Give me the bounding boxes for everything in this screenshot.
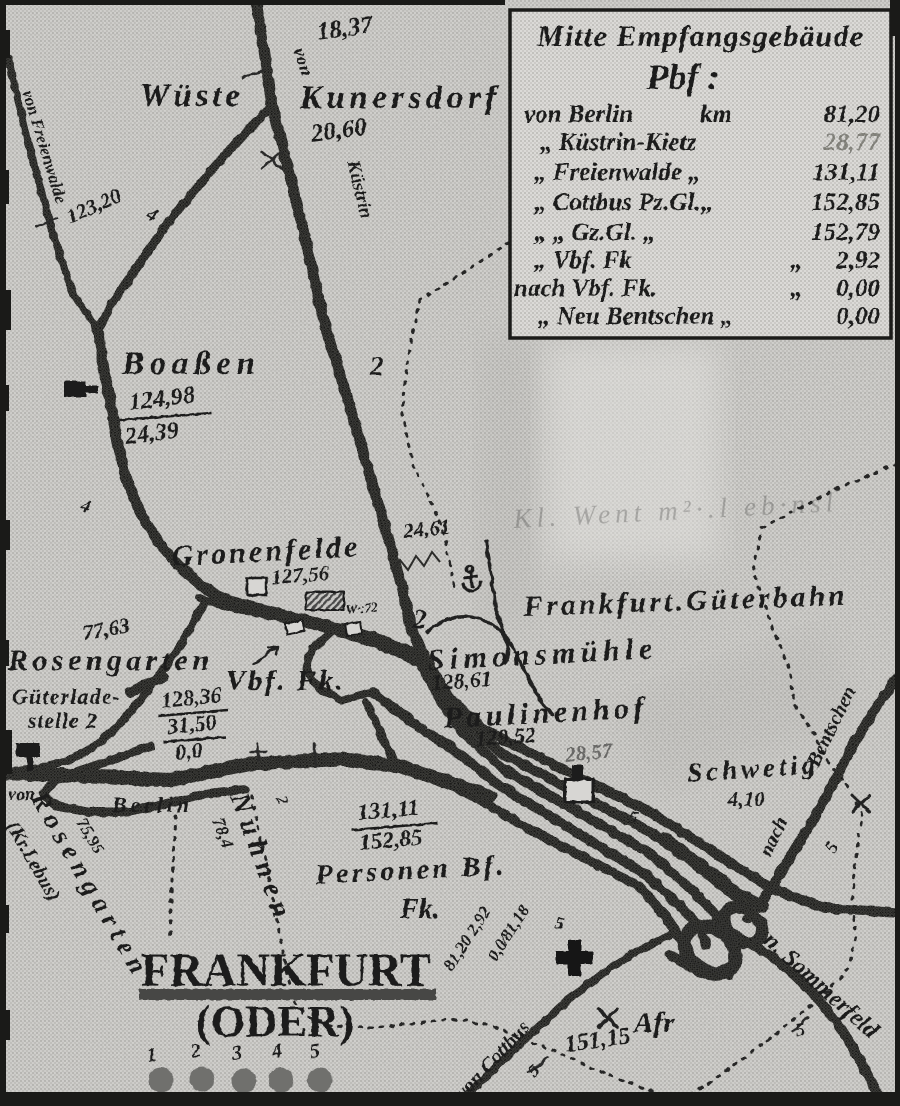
svg-text:0,00: 0,00 xyxy=(836,303,880,330)
svg-text:„ Neu Bentschen „: „ Neu Bentschen „ xyxy=(538,303,733,330)
svg-text:Afr: Afr xyxy=(632,1007,675,1039)
svg-text:2: 2 xyxy=(412,604,427,634)
svg-text:4,10: 4,10 xyxy=(727,787,765,811)
svg-text:„ Cottbus Pz.Gl.„: „ Cottbus Pz.Gl.„ xyxy=(534,189,713,216)
svg-text:31,50: 31,50 xyxy=(165,709,218,739)
svg-text:24,61: 24,61 xyxy=(401,514,451,543)
svg-text:stelle 2: stelle 2 xyxy=(27,708,97,733)
svg-text:„: „ xyxy=(790,275,803,302)
svg-text:Wüste: Wüste xyxy=(140,78,240,114)
svg-text:„ Küstrin-Kietz: „ Küstrin-Kietz xyxy=(540,129,697,156)
svg-text:Fk.: Fk. xyxy=(399,894,440,925)
svg-text:„ Freienwalde „: „ Freienwalde „ xyxy=(534,159,701,186)
svg-text:127,56: 127,56 xyxy=(271,561,331,589)
svg-text:0,00: 0,00 xyxy=(836,275,880,302)
svg-text:2,92: 2,92 xyxy=(835,247,880,274)
svg-text:Mitte Empfangsgebäude: Mitte Empfangsgebäude xyxy=(536,20,863,53)
svg-text:Pbf :: Pbf : xyxy=(646,57,720,97)
svg-text:Berlin: Berlin xyxy=(111,792,189,817)
svg-text:131,11: 131,11 xyxy=(813,159,880,186)
svg-text:(ODER): (ODER) xyxy=(196,997,354,1046)
svg-text:„ Vbf. Fk: „ Vbf. Fk xyxy=(534,247,632,274)
svg-text:152,85: 152,85 xyxy=(811,189,880,216)
svg-text:„: „ xyxy=(790,247,803,274)
svg-text:„ „ Gz.Gl. „: „ „ Gz.Gl. „ xyxy=(534,219,656,246)
svg-text:nach Vbf. Fk.: nach Vbf. Fk. xyxy=(514,275,657,302)
svg-text:2: 2 xyxy=(369,351,384,381)
svg-text:Rosengarten: Rosengarten xyxy=(7,644,209,677)
svg-text:152,79: 152,79 xyxy=(811,219,880,246)
svg-text:129,52: 129,52 xyxy=(475,722,537,751)
svg-text:km: km xyxy=(700,101,732,128)
svg-text:28,77: 28,77 xyxy=(823,129,882,156)
svg-text:128,61: 128,61 xyxy=(431,666,493,695)
svg-text:von Berlin: von Berlin xyxy=(524,101,633,128)
svg-text:81,20: 81,20 xyxy=(824,101,881,128)
svg-text:0,0: 0,0 xyxy=(174,737,204,765)
svg-text:W·:72: W·:72 xyxy=(345,599,379,617)
svg-text:Kunersdorf: Kunersdorf xyxy=(299,80,499,116)
svg-text:Güterlade-: Güterlade- xyxy=(12,684,120,709)
